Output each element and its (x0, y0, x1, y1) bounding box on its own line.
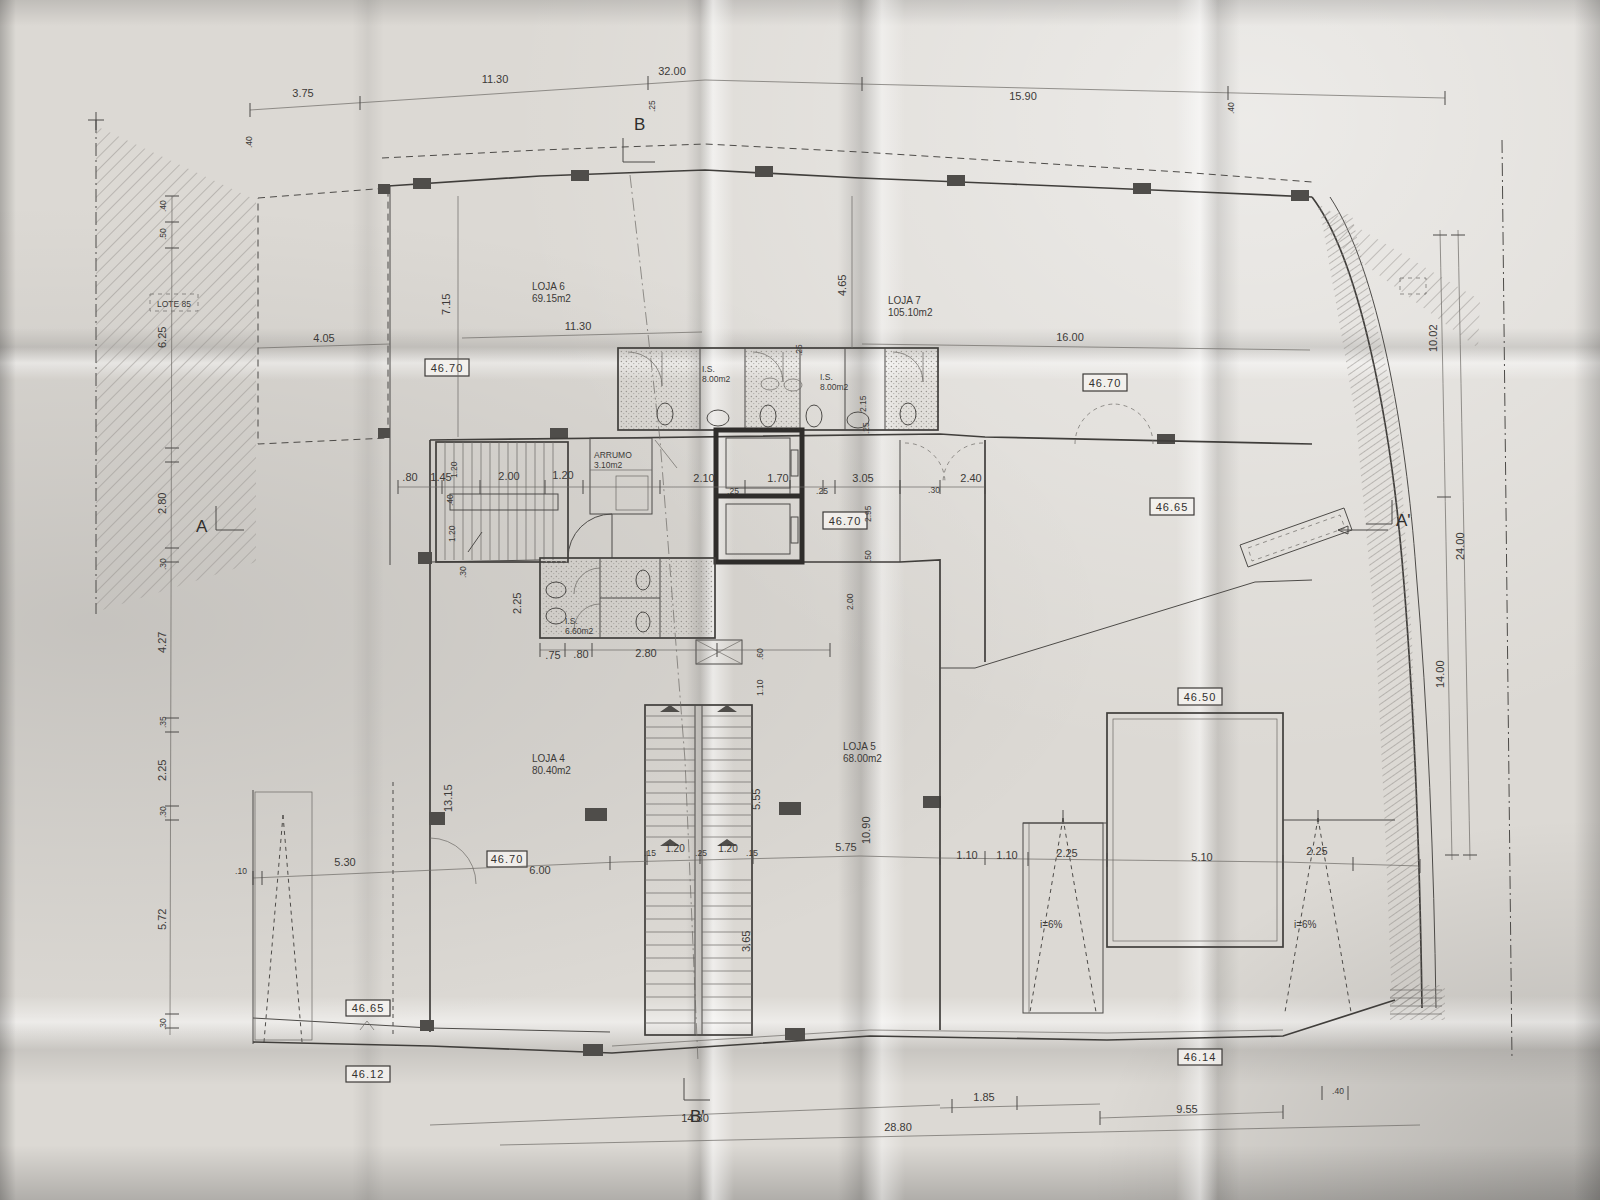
dim-label: 1.10 (996, 849, 1017, 861)
dim-label: 4.27 (156, 632, 168, 653)
dim-label: .80 (402, 471, 417, 483)
dim-label: 5.30 (334, 856, 355, 868)
hatched-curved-wall (1320, 210, 1422, 1005)
level-value: 46.70 (491, 853, 524, 865)
hatched-adjacent-lot (96, 126, 256, 612)
dim-label: 11.30 (482, 73, 509, 85)
dim-label: 2.00 (845, 593, 855, 610)
exterior-steps (1390, 985, 1445, 1020)
dim-label: .25 (816, 486, 828, 496)
site-boundaries (88, 112, 1512, 1060)
section-a-prime-label: A' (1396, 511, 1411, 530)
dim-label: 2.25 (511, 593, 523, 614)
room-area: 8.00m2 (820, 382, 849, 392)
dim-label: 5.75 (835, 841, 856, 853)
room-area: 80.40m2 (532, 765, 571, 776)
section-a-label: A (196, 517, 208, 536)
dim-label: .30 (928, 485, 940, 495)
dim-label: 10.02 (1427, 324, 1439, 352)
dim-label: 1.20 (447, 525, 457, 542)
duct-shaft (696, 640, 742, 664)
dim-label: 24.00 (1454, 532, 1466, 560)
dim-label: 7.15 (440, 294, 452, 315)
room-area: 69.15m2 (532, 293, 571, 304)
room-label: LOJA 4 (532, 753, 565, 764)
dim-label: 1.20 (552, 469, 573, 481)
room-label: I.S. (702, 364, 715, 374)
dim-label: 5.72 (156, 909, 168, 930)
dim-label: .10 (235, 866, 247, 876)
dim-label: .40 (158, 200, 168, 212)
dim-label: .50 (863, 550, 873, 562)
dim-label: .25 (647, 100, 657, 112)
dim-label: 3.75 (292, 87, 313, 99)
dim-label: 2.25 (1056, 847, 1077, 859)
dim-label: 4.65 (836, 275, 848, 296)
dim-label: 32.00 (658, 65, 686, 77)
dim-label: 2.15 (858, 395, 868, 412)
dim-label: 15.90 (1009, 90, 1037, 102)
dim-label: 2.95 (863, 505, 873, 522)
dim-label: .60 (755, 648, 765, 660)
slope-label: i=6% (1294, 919, 1317, 930)
property-line-right (1502, 140, 1512, 1060)
level-value: 46.70 (431, 362, 464, 374)
dim-label: .80 (573, 648, 588, 660)
dim-label: .25 (794, 344, 804, 356)
room-label: I.S. (565, 616, 578, 626)
stair-top-left (436, 442, 568, 562)
ramps (1023, 810, 1395, 1012)
dim-label: .30 (158, 806, 168, 818)
dim-label: 2.25 (156, 760, 168, 781)
dimension-lines (165, 76, 1477, 1145)
dim-label: 2.80 (156, 493, 168, 514)
dim-label: 1.85 (973, 1091, 994, 1103)
dim-label: 28.80 (884, 1121, 912, 1133)
room-area: 68.00m2 (843, 753, 882, 764)
dim-label: 14.00 (1434, 660, 1446, 688)
section-markers: B B' A A' (196, 115, 1411, 1126)
slope-label: i=6% (1040, 919, 1063, 930)
dim-label: .15 (746, 848, 758, 858)
dim-label: 2.40 (960, 472, 981, 484)
dim-label: .35 (158, 716, 168, 728)
section-b-label: B (634, 115, 645, 134)
dim-label: 11.30 (565, 320, 592, 332)
level-value: 46.12 (352, 1068, 385, 1080)
dim-label: 5.10 (1191, 851, 1212, 863)
dim-label: 2.25 (1306, 845, 1327, 857)
dim-label: .40 (244, 136, 254, 148)
dim-label: 1.20 (665, 843, 685, 854)
room-label: LOJA 7 (888, 295, 921, 306)
dim-label: .75 (545, 649, 560, 661)
dim-label: .50 (158, 228, 168, 240)
dim-label: 9.55 (1176, 1103, 1197, 1115)
dim-label: 3.65 (740, 931, 752, 952)
level-markers: 46.70 46.70 46.65 46.70 46.50 46.70 46.6… (346, 359, 1222, 1082)
room-area: 105.10m2 (888, 307, 933, 318)
room-labels: LOJA 6 69.15m2 LOJA 7 105.10m2 LOJA 4 80… (157, 281, 1317, 930)
floor-plan-drawing: B B' A A' LOJA 6 69.15m2 LOJA 7 105.10m2… (0, 0, 1600, 1200)
wc-block-top (618, 348, 938, 430)
dim-label: 4.05 (313, 332, 334, 344)
dim-label: 10.90 (860, 816, 872, 844)
room-label: I.S. (820, 372, 833, 382)
dim-label: .25 (695, 848, 707, 858)
dim-label: 14.80 (681, 1112, 709, 1124)
dim-label: 6.25 (156, 327, 168, 348)
dim-label: 13.15 (442, 784, 454, 812)
dim-label: .40 (1226, 102, 1236, 114)
central-stair (645, 705, 752, 1035)
dim-label: 2.80 (635, 647, 656, 659)
dim-label: 1.10 (956, 849, 977, 861)
dim-label: 2.10 (693, 472, 714, 484)
dim-label: .30 (158, 1018, 168, 1030)
building-outline (253, 144, 1395, 1056)
room-area: 6.60m2 (565, 626, 594, 636)
dashed-parcel (258, 188, 388, 444)
dim-label: 3.05 (852, 472, 873, 484)
dim-label: .15 (644, 848, 656, 858)
level-value: 46.65 (352, 1002, 385, 1014)
dim-label: .40 (445, 494, 455, 506)
photographed-floor-plan: B B' A A' LOJA 6 69.15m2 LOJA 7 105.10m2… (0, 0, 1600, 1200)
room-label: LOJA 6 (532, 281, 565, 292)
dim-label: .30 (158, 558, 168, 570)
raised-platform (1107, 713, 1283, 947)
dim-label: 2.00 (498, 470, 519, 482)
room-area: 3.10m2 (594, 460, 623, 470)
dim-label: 5.55 (750, 789, 762, 810)
level-value: 46.65 (1156, 501, 1189, 513)
level-value: 46.70 (829, 515, 862, 527)
dim-label: 16.00 (1056, 331, 1084, 343)
dim-label: .25 (861, 422, 871, 434)
dimension-labels: .40 3.75 11.30 32.00 .25 15.90 .40 .40 .… (156, 65, 1466, 1133)
dim-label: .40 (1332, 1086, 1344, 1096)
dim-label: 1.20 (718, 843, 738, 854)
room-label: LOJA 5 (843, 741, 876, 752)
level-value: 46.14 (1184, 1051, 1217, 1063)
dim-label: 6.00 (529, 864, 550, 876)
room-area: 8.00m2 (702, 374, 731, 384)
room-label: ARRUMO (594, 450, 632, 460)
dim-label: 1.70 (767, 472, 788, 484)
dim-label: .25 (727, 486, 739, 496)
level-value: 46.50 (1184, 691, 1217, 703)
level-value: 46.70 (1089, 377, 1122, 389)
lote-label: LOTE 85 (157, 299, 191, 309)
dim-label: 1.20 (449, 461, 459, 478)
dim-label: .30 (458, 566, 468, 578)
dim-label: 1.10 (755, 679, 765, 696)
